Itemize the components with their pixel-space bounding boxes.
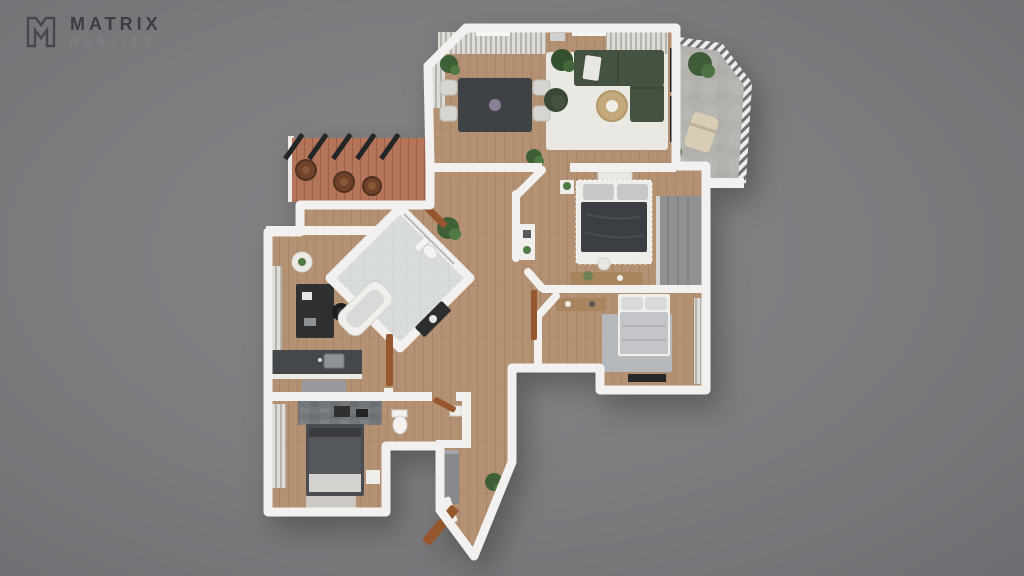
floor-mat — [628, 374, 666, 382]
coffee-table-tray — [606, 100, 618, 112]
toilet — [393, 416, 407, 434]
vanity-flowers — [583, 271, 593, 281]
wall-art — [356, 409, 368, 417]
vanity-stool — [598, 258, 610, 270]
duvet — [581, 202, 647, 252]
dresser-item — [589, 301, 595, 307]
desk — [296, 284, 334, 338]
dresser-item — [565, 301, 571, 307]
radiator — [598, 172, 632, 180]
armchair-seat — [551, 95, 565, 109]
mattress-end — [309, 474, 361, 492]
desk-papers — [302, 292, 312, 300]
wardrobe — [658, 196, 702, 288]
pergola-terrace — [283, 133, 426, 202]
shelf-plant — [523, 246, 531, 254]
wardrobe-edge — [656, 196, 660, 288]
dresser — [556, 298, 606, 311]
pillow — [617, 184, 648, 200]
bedroom3-door — [386, 334, 393, 386]
low-cabinet — [302, 380, 346, 392]
bedroom2-door — [531, 290, 537, 340]
sofa-chaise — [630, 84, 664, 122]
floor-plan — [0, 0, 1024, 576]
curtains — [272, 404, 286, 488]
table-centerpiece — [489, 99, 501, 111]
pillow-band — [309, 428, 361, 437]
kitchen-counter — [272, 350, 362, 374]
counter-base — [272, 374, 362, 379]
vanity-desk — [570, 272, 642, 285]
faucet — [318, 358, 322, 362]
bedroom3-rug — [306, 496, 356, 508]
sofa-throw — [582, 55, 601, 81]
kitchen-sink — [324, 354, 344, 368]
shelf-item — [523, 230, 531, 238]
render-canvas: MATRIX REALITY — [0, 0, 1024, 576]
side-table-plant — [298, 258, 306, 266]
pillow — [621, 297, 643, 310]
vanity-item — [617, 275, 623, 281]
desk-keyboard — [304, 318, 316, 326]
nightstand-plant — [563, 182, 571, 190]
pillow — [583, 184, 614, 200]
pillow — [645, 297, 667, 310]
wall-vent — [550, 33, 565, 41]
nightstand — [366, 470, 380, 484]
wall-art — [334, 406, 350, 417]
tall-cabinet — [444, 450, 459, 504]
wall-shelf — [520, 224, 535, 260]
duvet — [620, 312, 668, 354]
cabinet-top — [444, 450, 459, 454]
